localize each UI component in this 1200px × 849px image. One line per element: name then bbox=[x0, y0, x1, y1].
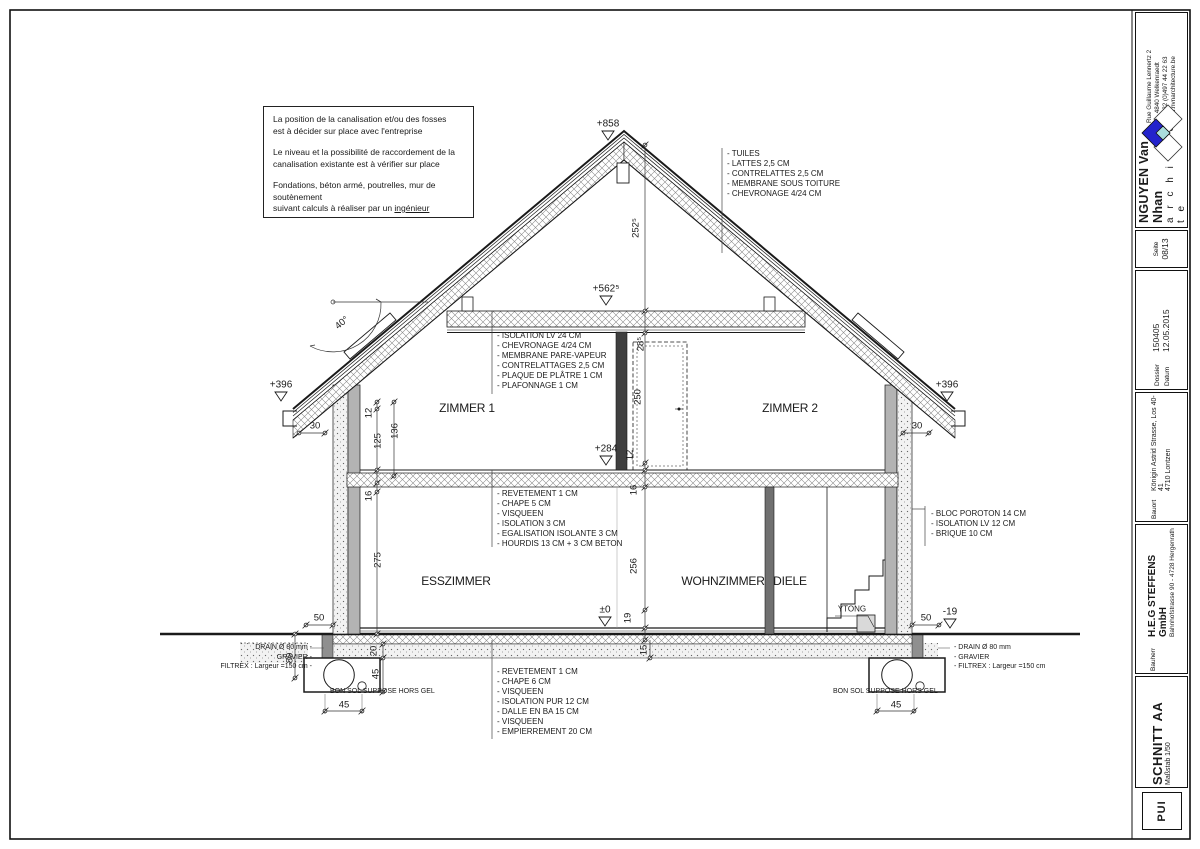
text-line: - MEMBRANE PARE-VAPEUR bbox=[497, 351, 607, 361]
text-line: GRAVIER - bbox=[206, 653, 312, 663]
text-line: - HOURDIS 13 CM + 3 CM BETON bbox=[497, 539, 622, 549]
text-line: - DALLE EN BA 15 CM bbox=[497, 707, 592, 717]
titleblock-dossier-section: Dossier 150405 Datum 12.05.2015 bbox=[1135, 270, 1188, 390]
dossier-row: Dossier 150405 bbox=[1151, 274, 1161, 386]
text-line: FILTREX : Largeur =150 cm - bbox=[206, 662, 312, 672]
bauort-address: Königin Astrid Strasse, Los 40-41 bbox=[1151, 395, 1165, 491]
wall-layers-annotation: - BLOC POROTON 14 CM- ISOLATION LV 12 CM… bbox=[931, 509, 1026, 539]
note-line: est à décider sur place avec l'entrepris… bbox=[273, 126, 464, 138]
text-line: - EGALISATION ISOLANTE 3 CM bbox=[497, 529, 622, 539]
dim-roof-height: 252⁵ bbox=[631, 218, 642, 238]
titleblock-bauort-section: Bauort Königin Astrid Strasse, Los 40-41… bbox=[1135, 392, 1188, 522]
dim-door-height: 250 bbox=[633, 389, 644, 405]
text-line: - MEMBRANE SOUS TOITURE bbox=[727, 179, 840, 189]
seite-label: Seite bbox=[1153, 242, 1160, 257]
text-line: - REVETEMENT 1 CM bbox=[497, 667, 592, 677]
ytong-label: YTONG bbox=[838, 605, 866, 614]
text-line: - CONTRELATTES 2,5 CM bbox=[727, 169, 840, 179]
dim-50-right: 50 bbox=[921, 613, 932, 624]
level-eave-right: +396 bbox=[936, 380, 959, 391]
text-line: DRAIN Ø 80 mm - bbox=[206, 643, 312, 653]
bauort-row: Bauort Königin Astrid Strasse, Los 40-41 bbox=[1151, 395, 1165, 519]
room-label-diele: DIELE bbox=[773, 574, 807, 588]
text-line: - CHAPE 6 CM bbox=[497, 677, 592, 687]
text-line: - CHEVRONAGE 4/24 CM bbox=[497, 341, 607, 351]
bauherr-label: Bauherr bbox=[1150, 637, 1157, 671]
foundations bbox=[304, 658, 945, 692]
soil-note-left: BON SOL SUPPOSE HORS GEL bbox=[330, 688, 435, 695]
text-line: - ISOLATION LV 24 CM bbox=[497, 331, 607, 341]
level-ridge: +858 bbox=[597, 119, 620, 130]
bauherr-address: Bahnhofstrasse 90 - 4728 Hergenrath bbox=[1169, 528, 1176, 637]
dim-12-center: 12 bbox=[625, 450, 636, 461]
dim-eave-30-left: 30 bbox=[310, 421, 321, 432]
dim-left-275: 275 bbox=[373, 552, 384, 568]
text-line: - VISQUEEN bbox=[497, 717, 592, 727]
attic-ceiling-annotation: - ISOLATION LV 24 CM- CHEVRONAGE 4/24 CM… bbox=[497, 331, 607, 391]
text-line: - EMPIERREMENT 20 CM bbox=[497, 727, 592, 737]
dim-left-80: 80 bbox=[285, 653, 296, 664]
dim-19: 19 bbox=[623, 613, 634, 624]
upper-floor-annotation: - REVETEMENT 1 CM- CHAPE 5 CM- VISQUEEN-… bbox=[497, 489, 622, 549]
dim-ceiling-thickness: 28⁵ bbox=[636, 337, 647, 352]
bauherr-name: H.E.G STEFFENS GmbH bbox=[1147, 527, 1169, 637]
bauort-city: 4710 Lontzen bbox=[1165, 449, 1172, 491]
roof-layers-annotation: - TUILES- LATTES 2,5 CM- CONTRELATTES 2,… bbox=[727, 149, 840, 199]
note-line: Le niveau et la possibilité de raccordem… bbox=[273, 147, 464, 159]
dim-left-45: 45 bbox=[371, 669, 382, 680]
text-line: - CHEVRONAGE 4/24 CM bbox=[727, 189, 840, 199]
note-line: Fondations, béton armé, poutrelles, mur … bbox=[273, 180, 464, 203]
upper-floor bbox=[347, 470, 898, 487]
dossier-value: 150405 bbox=[1151, 324, 1161, 352]
bauort-label: Bauort bbox=[1151, 491, 1158, 519]
titleblock-architect-section: NGUYEN Van Nhan a r c h i t e c t e Rue … bbox=[1135, 12, 1188, 228]
dim-left-16: 16 bbox=[364, 491, 375, 502]
sheet-title: SCHNITT AA bbox=[1150, 702, 1165, 785]
sheet-frame bbox=[10, 10, 1190, 839]
room-label-esszimmer: ESSZIMMER bbox=[421, 574, 491, 588]
room-label-wohnzimmer: WOHNZIMMER bbox=[681, 574, 764, 588]
text-line: - CONTRELATTAGES 2,5 CM bbox=[497, 361, 607, 371]
datum-row: Datum 12.05.2015 bbox=[1161, 274, 1171, 386]
dim-left-12: 12 bbox=[364, 408, 375, 419]
text-line: - TUILES bbox=[727, 149, 840, 159]
dim-room-height: 256 bbox=[629, 558, 640, 574]
text-line: - PLAFONNAGE 1 CM bbox=[497, 381, 607, 391]
drain-annotation-right: - DRAIN Ø 80 mm- GRAVIER- FILTREX : Larg… bbox=[954, 643, 1046, 672]
level-attic-floor: +284 bbox=[595, 444, 618, 455]
titleblock-seite-section: Seite 08/13 bbox=[1135, 230, 1188, 268]
dim-15: 15 bbox=[639, 645, 650, 656]
text-line: - REVETEMENT 1 CM bbox=[497, 489, 622, 499]
text-line: - BRIQUE 10 CM bbox=[931, 529, 1026, 539]
dim-left-136: 136 bbox=[390, 423, 401, 439]
architect-logo bbox=[1138, 97, 1186, 175]
soil-note-right: BON SOL SUPPOSE HORS GEL bbox=[833, 688, 938, 695]
text-line: - GRAVIER bbox=[954, 653, 1046, 663]
room-label-zimmer2: ZIMMER 2 bbox=[762, 401, 818, 415]
dim-50-left: 50 bbox=[314, 613, 325, 624]
text-line: - ISOLATION 3 CM bbox=[497, 519, 622, 529]
drawing-sheet: La position de la canalisation et/ou des… bbox=[0, 0, 1200, 849]
sheet-scale: Maßstab 1/50 bbox=[1165, 742, 1172, 785]
dim-left-125: 125 bbox=[373, 433, 384, 449]
text-line: - FILTREX : Largeur =150 cm bbox=[954, 662, 1046, 672]
datum-label: Datum bbox=[1164, 352, 1171, 386]
note-line: suivant calculs à réaliser par un ingéni… bbox=[273, 203, 464, 215]
text-line: - CHAPE 5 CM bbox=[497, 499, 622, 509]
text-line: - LATTES 2,5 CM bbox=[727, 159, 840, 169]
level-terrain: -19 bbox=[943, 607, 957, 618]
text-line: - ISOLATION LV 12 CM bbox=[931, 519, 1026, 529]
titleblock-bauherr-section: Bauherr H.E.G STEFFENS GmbH Bahnhofstras… bbox=[1135, 524, 1188, 674]
dim-floor-thickness: 16 bbox=[629, 485, 640, 496]
drain-annotation-left: DRAIN Ø 80 mm -GRAVIER -FILTREX : Largeu… bbox=[206, 643, 312, 672]
level-eave-left: +396 bbox=[270, 380, 293, 391]
datum-value: 12.05.2015 bbox=[1161, 309, 1171, 352]
level-ground: ±0 bbox=[599, 605, 610, 616]
text-line: - VISQUEEN bbox=[497, 687, 592, 697]
note-line: canalisation existante est à vérifier su… bbox=[273, 159, 464, 171]
text-line: - DRAIN Ø 80 mm bbox=[954, 643, 1046, 653]
dim-foot-45-right: 45 bbox=[891, 700, 902, 711]
dim-eave-30-right: 30 bbox=[912, 421, 923, 432]
dim-foot-45-left: 45 bbox=[339, 700, 350, 711]
text-line: - VISQUEEN bbox=[497, 509, 622, 519]
text-line: - BLOC POROTON 14 CM bbox=[931, 509, 1026, 519]
seite-value: 08/13 bbox=[1160, 238, 1170, 259]
text-line: - PLAQUE DE PLÂTRE 1 CM bbox=[497, 371, 607, 381]
bauherr-row: Bauherr H.E.G STEFFENS GmbH bbox=[1147, 527, 1169, 671]
company-logo-text: PUI bbox=[1156, 800, 1168, 821]
ground-floor-annotation: - REVETEMENT 1 CM- CHAPE 6 CM- VISQUEEN-… bbox=[497, 667, 592, 737]
site-notes-box: La position de la canalisation et/ou des… bbox=[263, 106, 474, 218]
level-attic-ceiling: +562⁵ bbox=[593, 284, 620, 295]
text-line: - ISOLATION PUR 12 CM bbox=[497, 697, 592, 707]
titleblock-logo-section: PUI bbox=[1142, 792, 1182, 830]
note-line: La position de la canalisation et/ou des… bbox=[273, 114, 464, 126]
attic-ceiling bbox=[447, 297, 805, 333]
dossier-label: Dossier bbox=[1154, 352, 1161, 386]
dim-left-20: 20 bbox=[369, 646, 380, 657]
titleblock-title-section: SCHNITT AA Maßstab 1/50 bbox=[1135, 676, 1188, 788]
room-label-zimmer1: ZIMMER 1 bbox=[439, 401, 495, 415]
